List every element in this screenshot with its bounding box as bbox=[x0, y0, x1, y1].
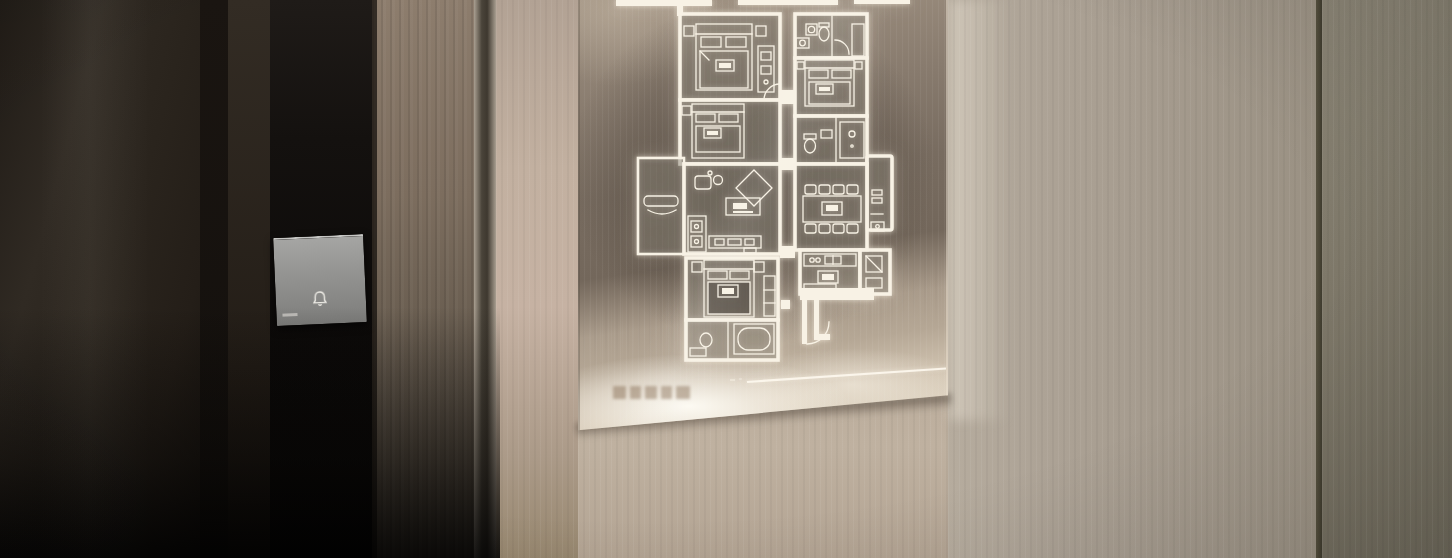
corridor-photo bbox=[0, 0, 1452, 558]
photo-vignette bbox=[0, 0, 1452, 558]
